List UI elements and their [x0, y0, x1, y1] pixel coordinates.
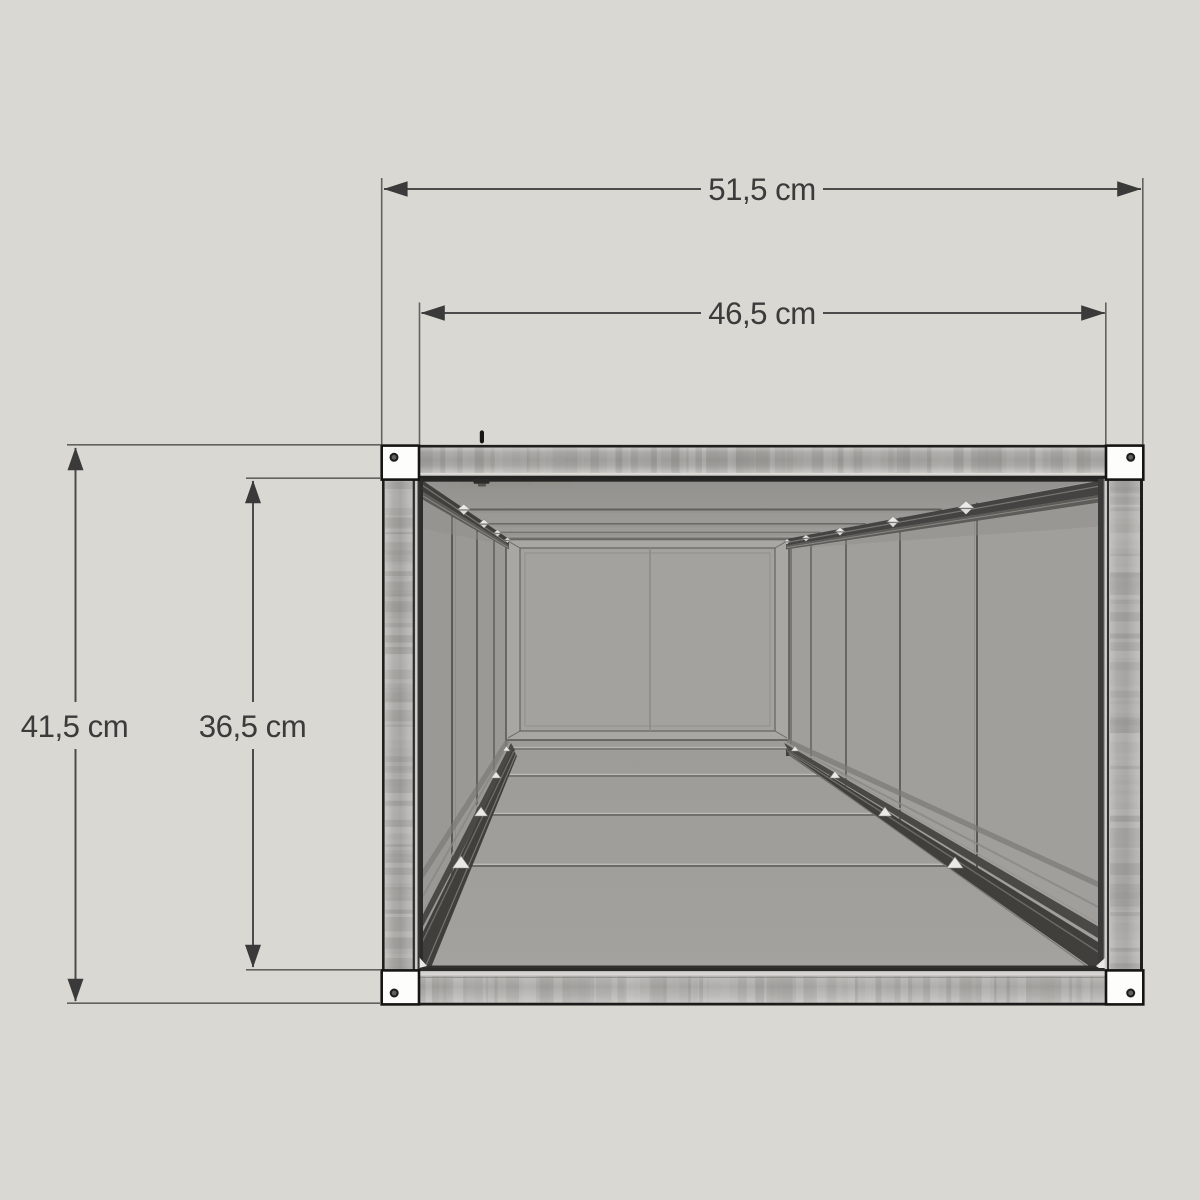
svg-text:36,5 cm: 36,5 cm — [199, 709, 306, 744]
svg-text:51,5 cm: 51,5 cm — [708, 172, 815, 207]
svg-text:41,5 cm: 41,5 cm — [21, 709, 128, 744]
svg-text:46,5 cm: 46,5 cm — [708, 296, 815, 331]
